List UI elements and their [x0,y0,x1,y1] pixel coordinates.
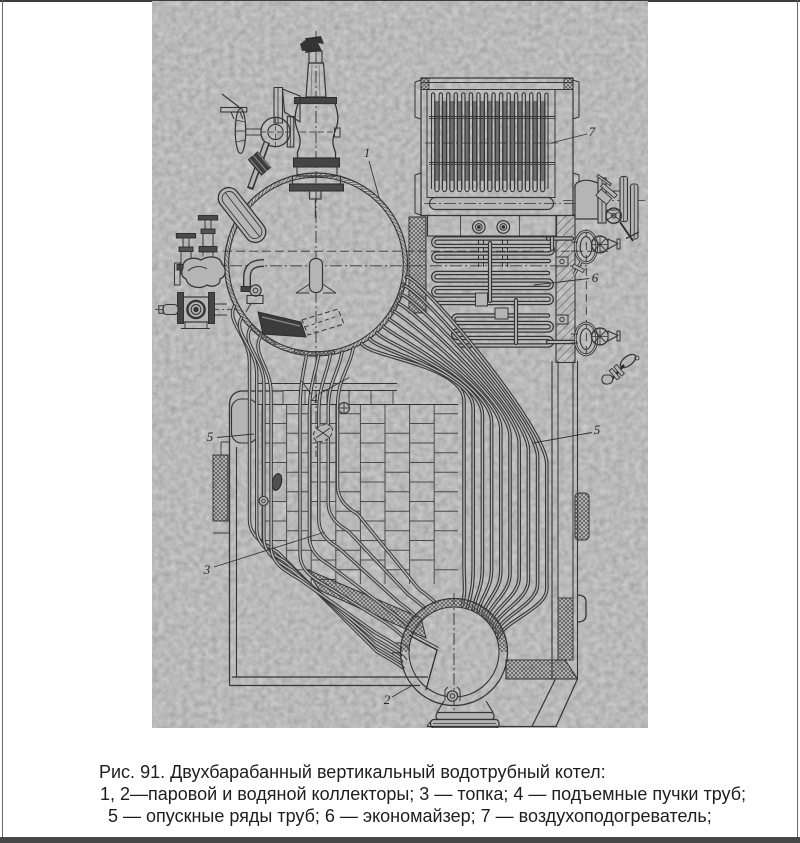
svg-text:1: 1 [364,145,371,160]
svg-text:5: 5 [207,429,214,444]
svg-text:3: 3 [203,562,211,577]
svg-text:6: 6 [592,270,599,285]
svg-text:5: 5 [594,422,601,437]
svg-text:2: 2 [384,692,391,707]
svg-text:7: 7 [589,124,596,139]
svg-text:4: 4 [311,391,318,406]
